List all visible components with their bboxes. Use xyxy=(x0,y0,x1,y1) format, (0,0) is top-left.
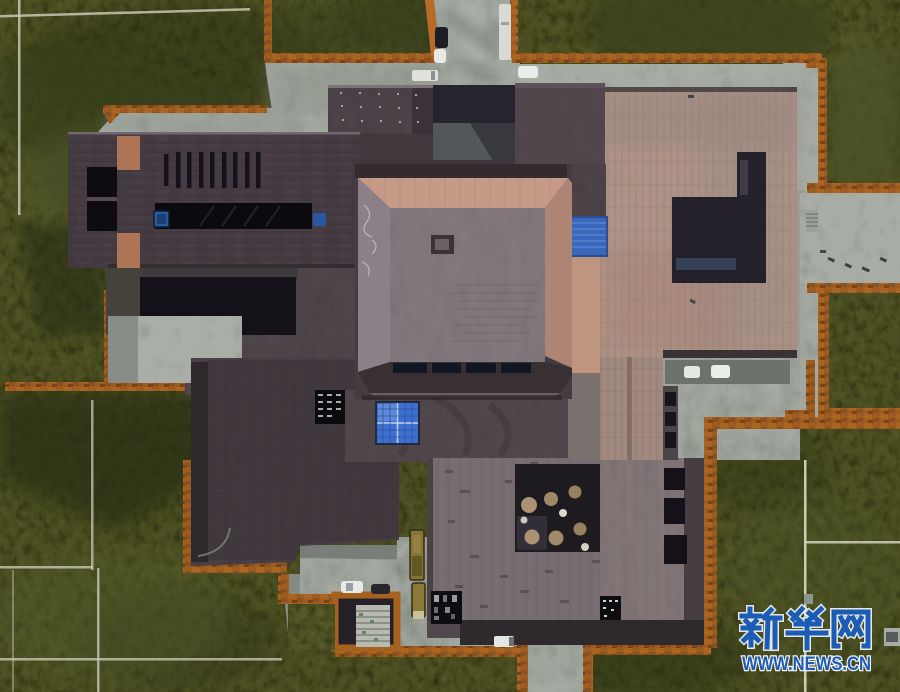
svg-text:WWW.NEWS.CN: WWW.NEWS.CN xyxy=(742,654,871,675)
